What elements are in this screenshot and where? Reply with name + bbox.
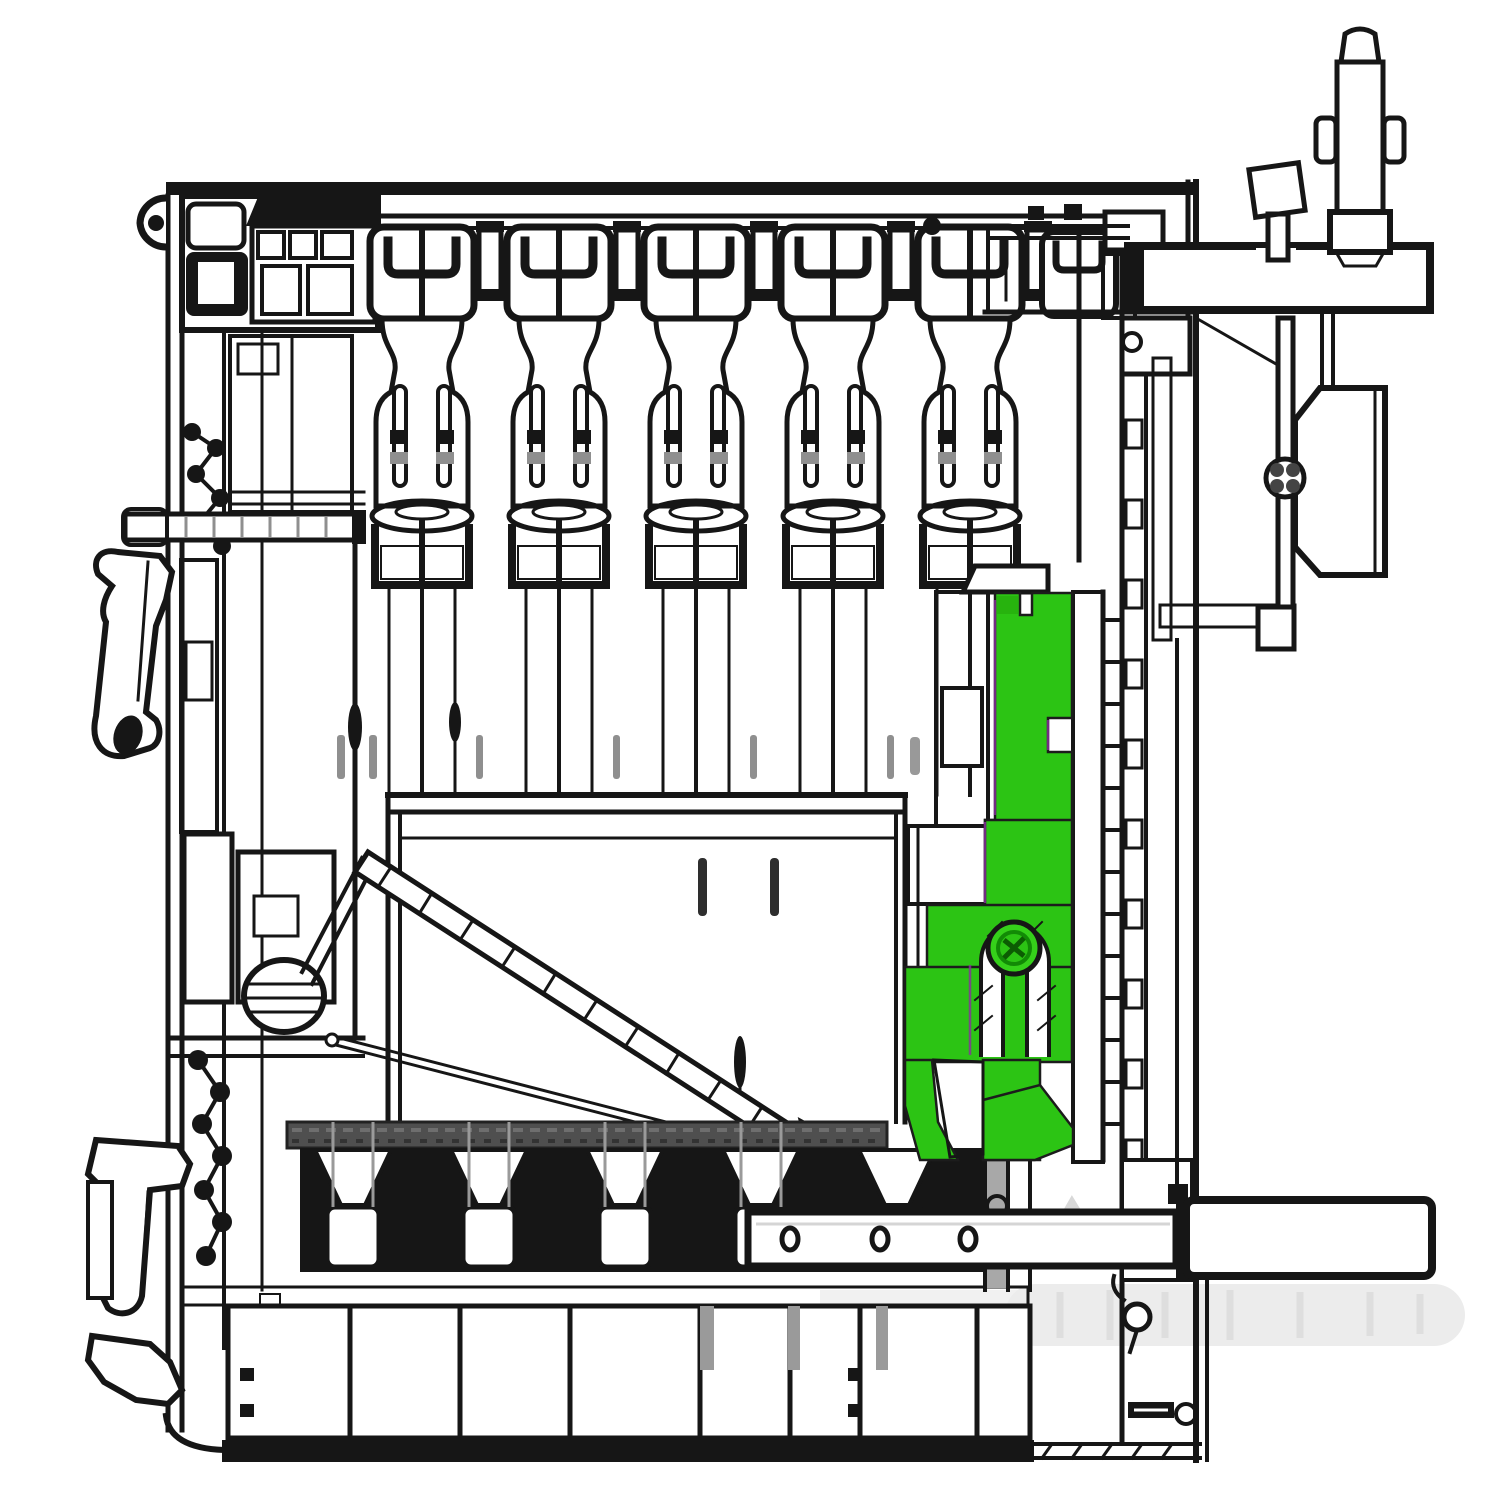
long-bar — [1186, 1200, 1432, 1276]
diagram-canvas — [0, 0, 1500, 1500]
left-clamps — [88, 551, 190, 1404]
stud-block — [1249, 163, 1305, 217]
comb-and-cells — [183, 1122, 1030, 1438]
bottom-bars — [748, 1198, 1432, 1278]
pivot-screw-icon — [988, 922, 1040, 974]
margin-head-block — [182, 196, 378, 330]
machine-cross-section-svg — [0, 0, 1500, 1500]
side-housing — [1196, 312, 1385, 649]
open-chamber — [388, 795, 905, 1148]
comb-bar — [287, 1122, 887, 1148]
key-front-row — [228, 1306, 1030, 1438]
adjusting-screw — [1316, 29, 1404, 266]
